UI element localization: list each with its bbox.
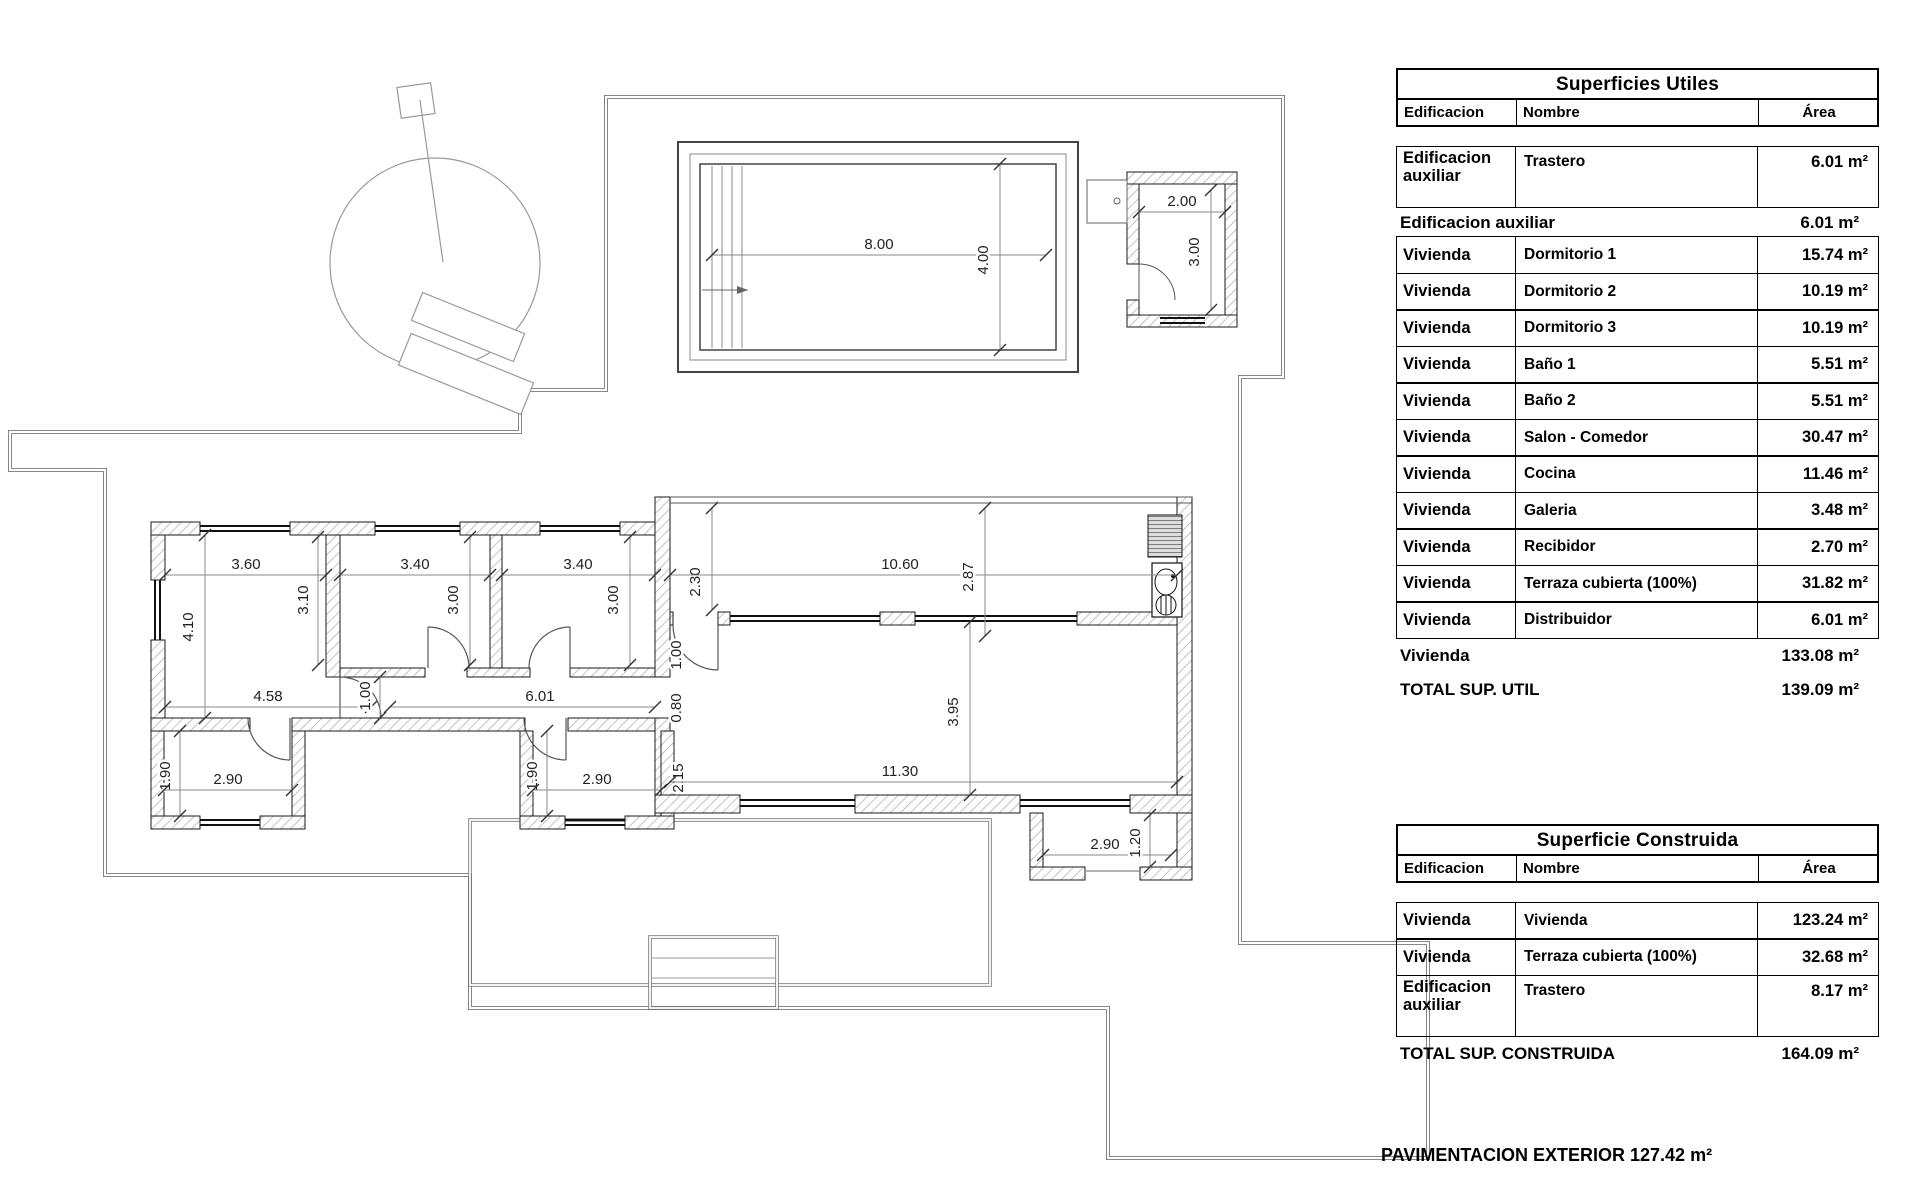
dimension-label: 3.40 [400,556,429,573]
table-superficie-construida: Superficie Construida Edificacion Nombre… [1396,824,1879,1071]
summary-label: Edificacion auxiliar [1396,213,1748,233]
table-cell: 15.74 m² [1757,237,1878,273]
table-superficies-utiles: Superficies Utiles Edificacion Nombre Ár… [1396,68,1879,707]
col-header-area: Área [1758,100,1879,125]
table-cell: Vivienda [1397,426,1515,449]
table-title: Superficies Utiles [1396,68,1879,100]
trastero-door [1139,264,1175,300]
table-body: Edificacion auxiliarTrastero6.01 m²Edifi… [1396,146,1879,708]
col-header-nombre: Nombre [1516,856,1758,881]
table-cell: Baño 2 [1515,383,1757,419]
table-cell: 31.82 m² [1757,566,1878,602]
dimension-label: 2.87 [960,562,977,591]
table-cell: Terraza cubierta (100%) [1515,566,1757,602]
table-row: Edificacion auxiliarTrastero6.01 m² [1396,146,1879,208]
summary-value: 133.08 m² [1748,646,1869,666]
table-row: ViviendaTerraza cubierta (100%)32.68 m² [1396,938,1879,976]
dimension-label: 4.58 [253,688,282,705]
table-row: ViviendaSalon - Comedor30.47 m² [1396,419,1879,457]
table-cell: Vivienda [1397,946,1515,969]
exterior-paving [470,820,990,1008]
stove-icon [1148,515,1182,557]
table-row: ViviendaBaño 15.51 m² [1396,346,1879,384]
dimension-label: 2.30 [687,567,704,596]
table-cell: Dormitorio 1 [1515,237,1757,273]
dimension-label: 2.15 [670,763,687,792]
table-row: ViviendaBaño 25.51 m² [1396,382,1879,420]
col-header-area: Área [1758,856,1879,881]
dimension-label: 0.80 [668,693,685,722]
col-header-edificacion: Edificacion [1398,856,1516,881]
summary-value: 6.01 m² [1748,213,1869,233]
table-summary-row: TOTAL SUP. CONSTRUIDA164.09 m² [1396,1037,1879,1071]
table-cell: Trastero [1515,976,1757,1036]
table-cell: Vivienda [1515,903,1757,939]
table-row: ViviendaDistribuidor6.01 m² [1396,601,1879,639]
table-cell: 6.01 m² [1757,602,1878,638]
table-cell: 10.19 m² [1757,274,1878,310]
summary-label: TOTAL SUP. CONSTRUIDA [1396,1044,1748,1064]
dimension-label: 10.60 [881,556,919,573]
table-summary-row: Edificacion auxiliar6.01 m² [1396,208,1879,238]
dimension-label: 8.00 [864,236,893,253]
table-cell: 123.24 m² [1757,903,1878,939]
table-cell: 3.48 m² [1757,493,1878,529]
summary-value: 164.09 m² [1748,1044,1869,1064]
table-cell: 8.17 m² [1757,976,1878,1036]
dimension-label: 2.90 [582,771,611,788]
dimension-label: 3.95 [945,697,962,726]
kitchen-fixtures [1148,515,1182,617]
table-cell: 11.46 m² [1757,456,1878,492]
table-cell: Galeria [1515,493,1757,529]
table-cell: Baño 1 [1515,347,1757,383]
site-boundary [10,97,1428,1158]
table-cell: Terraza cubierta (100%) [1515,939,1757,975]
door-dormitorio-2 [428,627,469,668]
table-row: ViviendaCocina11.46 m² [1396,455,1879,493]
summary-label: TOTAL SUP. UTIL [1396,680,1748,700]
table-cell: 2.70 m² [1757,529,1878,565]
dimension-label: 3.00 [1186,237,1203,266]
table-row: ViviendaDormitorio 310.19 m² [1396,309,1879,347]
architectural-drawing-sheet: { "plan": { "dim_labels": [ {"t":"3.60",… [0,0,1920,1200]
dimension-label: 1.00 [668,640,685,669]
dimension-label: 1.90 [524,761,541,790]
table-row: ViviendaDormitorio 115.74 m² [1396,236,1879,274]
table-row: ViviendaTerraza cubierta (100%)31.82 m² [1396,565,1879,603]
table-cell: Vivienda [1397,317,1515,340]
pool-flow-arrow [702,286,748,294]
table-cell: Edificacion auxiliar [1397,147,1515,189]
table-cell: 6.01 m² [1757,147,1878,207]
dimension-label: 6.01 [525,688,554,705]
dimension-label: 3.00 [445,585,462,614]
table-summary-row: Vivienda133.08 m² [1396,639,1879,673]
table-row: ViviendaRecibidor2.70 m² [1396,528,1879,566]
table-cell: Vivienda [1397,609,1515,632]
trastero-building [1087,172,1237,327]
swimming-pool [678,142,1078,372]
table-cell: Vivienda [1397,572,1515,595]
table-cell: Vivienda [1397,463,1515,486]
table-cell: Vivienda [1397,244,1515,267]
dimension-label: 3.60 [231,556,260,573]
table-cell: Salon - Comedor [1515,420,1757,456]
table-row: Edificacion auxiliarTrastero8.17 m² [1396,975,1879,1037]
summary-label: Vivienda [1396,646,1748,666]
dimension-annotations: 3.603.403.404.103.103.003.002.3010.602.8… [157,158,1231,873]
table-cell: Distribuidor [1515,602,1757,638]
table-cell: Vivienda [1397,280,1515,303]
col-header-nombre: Nombre [1516,100,1758,125]
table-cell: Dormitorio 3 [1515,310,1757,346]
table-row: ViviendaGaleria3.48 m² [1396,492,1879,530]
terrace-edge [670,497,1192,503]
table-cell: 32.68 m² [1757,939,1878,975]
table-cell: Vivienda [1397,499,1515,522]
table-cell: Edificacion auxiliar [1397,976,1515,1018]
table-row: ViviendaDormitorio 210.19 m² [1396,273,1879,311]
table-header-row: Edificacion Nombre Área [1396,856,1879,883]
dimension-label: 1.00 [357,681,374,710]
table-cell: Vivienda [1397,390,1515,413]
dimension-label: 1.20 [1127,828,1144,857]
table-cell: 5.51 m² [1757,347,1878,383]
summary-value: 139.09 m² [1748,680,1869,700]
table-cell: 5.51 m² [1757,383,1878,419]
dimension-label: 4.00 [975,245,992,274]
dimension-label: 3.00 [605,585,622,614]
door-dormitorio-3 [529,627,570,668]
table-cell: Vivienda [1397,536,1515,559]
dimension-label: 11.30 [882,763,918,780]
table-cell: Recibidor [1515,529,1757,565]
col-header-edificacion: Edificacion [1398,100,1516,125]
garden-feature [330,83,540,415]
dimension-label: 3.10 [295,585,312,614]
dimension-label: 1.90 [157,761,174,790]
table-cell: Vivienda [1397,353,1515,376]
dimension-label: 2.90 [213,771,242,788]
dimension-label: 4.10 [180,612,197,641]
table-summary-row: TOTAL SUP. UTIL139.09 m² [1396,673,1879,707]
table-row: ViviendaVivienda123.24 m² [1396,902,1879,940]
table-cell: 10.19 m² [1757,310,1878,346]
dimension-label: 2.00 [1167,193,1196,210]
table-cell: Vivienda [1397,909,1515,932]
dimension-label: 3.40 [563,556,592,573]
table-cell: Trastero [1515,147,1757,207]
table-title: Superficie Construida [1396,824,1879,856]
table-header-row: Edificacion Nombre Área [1396,100,1879,127]
dimension-label: 2.90 [1090,836,1119,853]
table-body: ViviendaVivienda123.24 m²ViviendaTerraza… [1396,902,1879,1071]
door-bano-1 [248,718,290,760]
table-cell: Cocina [1515,456,1757,492]
pavimentacion-exterior-note: PAVIMENTACION EXTERIOR 127.42 m² [1381,1145,1712,1166]
house-walls [151,497,1192,880]
table-cell: 30.47 m² [1757,420,1878,456]
table-cell: Dormitorio 2 [1515,274,1757,310]
